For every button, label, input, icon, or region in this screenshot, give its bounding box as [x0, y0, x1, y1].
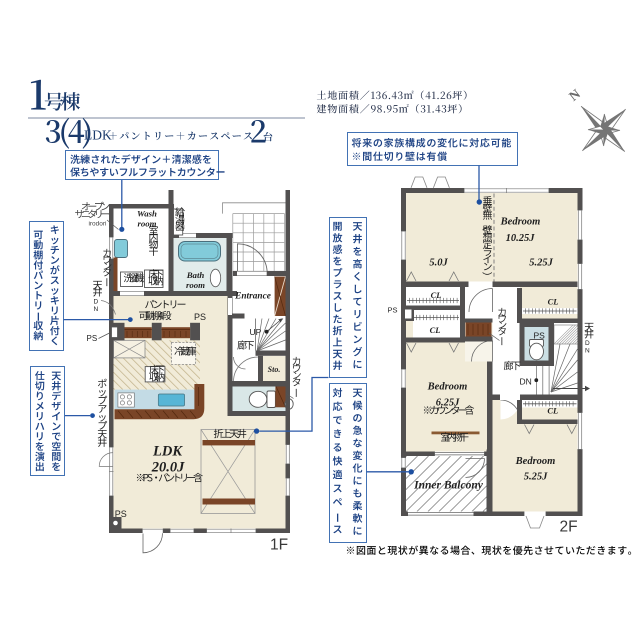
svg-text:irodori: irodori	[88, 221, 106, 228]
svg-text:LDK: LDK	[152, 444, 183, 460]
svg-text:6.25J: 6.25J	[436, 398, 460, 409]
svg-text:N: N	[566, 86, 583, 104]
svg-text:Inner Balcony: Inner Balcony	[413, 480, 484, 492]
svg-text:10.25J: 10.25J	[506, 233, 536, 244]
svg-text:20.0J: 20.0J	[151, 460, 185, 476]
svg-text:Bath: Bath	[186, 270, 205, 280]
svg-text:Bedroom: Bedroom	[515, 456, 556, 467]
svg-text:CL: CL	[547, 405, 558, 415]
svg-text:CL: CL	[430, 325, 441, 335]
svg-text:D: D	[93, 299, 98, 306]
svg-text:5.0J: 5.0J	[429, 258, 448, 269]
svg-text:5.25J: 5.25J	[529, 258, 553, 269]
svg-text:CL: CL	[431, 290, 442, 300]
svg-text:CL: CL	[548, 296, 559, 306]
svg-text:D: D	[585, 340, 590, 347]
svg-text:room: room	[186, 280, 205, 290]
svg-text:UP: UP	[250, 327, 262, 337]
svg-text:Entrance: Entrance	[234, 292, 271, 302]
svg-text:PS: PS	[87, 334, 98, 343]
svg-text:PS: PS	[115, 509, 127, 519]
svg-text:PS: PS	[388, 306, 398, 315]
svg-text:1F: 1F	[270, 537, 288, 554]
svg-text:Bedroom: Bedroom	[500, 217, 541, 228]
svg-text:Sto.: Sto.	[268, 365, 281, 374]
svg-text:Bedroom: Bedroom	[427, 382, 468, 393]
svg-text:2F: 2F	[560, 519, 578, 536]
svg-text:PS: PS	[534, 330, 546, 340]
svg-text:PS: PS	[194, 312, 206, 322]
svg-text:N: N	[93, 306, 98, 313]
svg-text:N: N	[585, 348, 590, 355]
svg-text:DN: DN	[520, 377, 532, 387]
svg-text:Wash: Wash	[137, 209, 157, 219]
svg-text:5.25J: 5.25J	[524, 472, 548, 483]
